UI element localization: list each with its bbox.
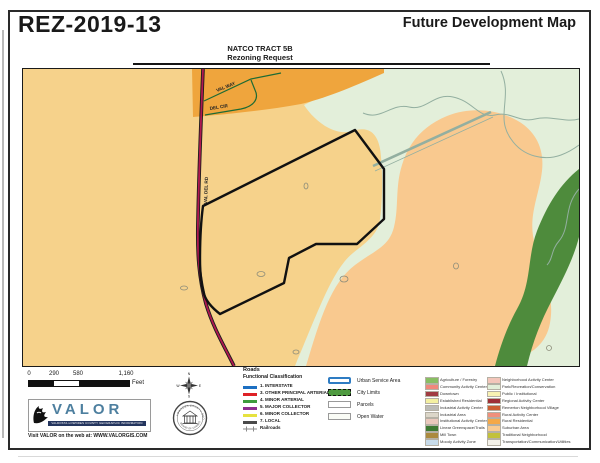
land-use-swatch [425, 398, 439, 405]
land-use-swatch [487, 412, 501, 419]
road-class-label: 5. MAJOR COLLECTOR [260, 404, 310, 409]
land-use-label: Neighborhood Activity Center [502, 377, 554, 382]
land-use-swatch [425, 418, 439, 425]
land-use-label: Community Activity Center [440, 384, 487, 389]
railroad-symbol [243, 426, 257, 432]
compass-rose-icon: N E S W [176, 371, 202, 398]
road-class-line [243, 393, 257, 396]
road-class-label: 6. MINOR COLLECTOR [260, 411, 309, 416]
boundary-label: Parcels [357, 402, 374, 408]
land-use-label: Regional Activity Center [502, 398, 544, 403]
land-use-swatch [425, 405, 439, 412]
railroads-label: Railroads [260, 425, 281, 430]
land-use-label: Industrial Activity Center [440, 405, 483, 410]
valor-website-line: Visit VALOR on the web at: WWW.VALORGIS.… [28, 433, 168, 439]
scanned-map-page: REZ-2019-13 Future Development Map NATCO… [0, 0, 600, 463]
svg-text:N: N [188, 372, 191, 376]
scale-tick: 580 [68, 371, 88, 377]
scan-edge [2, 30, 4, 438]
land-use-swatch [425, 384, 439, 391]
land-use-swatch [487, 439, 501, 446]
road-class-label: 3. OTHER PRINCIPAL ARTERIAL [260, 390, 330, 395]
land-use-label: Public / Institutional [502, 391, 536, 396]
val-del-rd-label: VAL DEL RD [203, 176, 209, 204]
land-use-swatch [487, 398, 501, 405]
county-seal-icon: LOWNDES COUNTY GEORGIA BOARD OF COMMISSI… [170, 398, 210, 438]
land-use-label: Institutional Activity Center [440, 418, 487, 423]
valor-logo-icon [32, 404, 49, 426]
land-use-label: Transportation/Communication/Utilities [502, 439, 571, 444]
scale-tick: 290 [44, 371, 64, 377]
land-use-label: Industrial Area [440, 412, 466, 417]
road-class-line [243, 400, 257, 403]
road-class-line [243, 414, 257, 417]
map-canvas: VAL WAY DEL CIR VAL DEL RD [22, 68, 580, 367]
case-number: REZ-2019-13 [18, 11, 162, 38]
scan-edge [18, 456, 578, 457]
road-class-label: 1. INTERSTATE [260, 383, 293, 388]
land-use-label: Suburban Area [502, 425, 529, 430]
tract-name: NATCO TRACT 5B [180, 44, 340, 53]
land-use-label: Mill Town [440, 432, 456, 437]
land-use-swatch [425, 377, 439, 384]
map-drawing: VAL WAY DEL CIR VAL DEL RD [23, 69, 579, 366]
title-underline [133, 63, 490, 65]
scale-unit: Feet [132, 380, 144, 386]
land-use-label: Linear Greenspace/Trails [440, 425, 485, 430]
scale-bar [28, 380, 130, 387]
land-use-swatch [425, 425, 439, 432]
boundary-label: Open Water [357, 414, 384, 420]
land-use-label: Established Residential [440, 398, 482, 403]
parcels-swatch [328, 401, 351, 408]
land-use-swatch [487, 384, 501, 391]
road-class-label: 4. MINOR ARTERIAL [260, 397, 304, 402]
scale-tick: 1,160 [112, 371, 140, 377]
road-class-line [243, 421, 257, 424]
city-limits-swatch [328, 389, 351, 396]
land-use-label: Downtown [440, 391, 459, 396]
boundary-label: Urban Service Area [357, 378, 400, 384]
land-use-label: Traditional Neighborhood [502, 432, 547, 437]
land-use-label: Rural Residential [502, 418, 532, 423]
land-use-swatch [487, 432, 501, 439]
land-use-swatch [487, 418, 501, 425]
map-title: Future Development Map [403, 15, 576, 31]
land-use-swatch [425, 439, 439, 446]
svg-text:W: W [176, 384, 180, 388]
roads-legend-title: Roads [243, 367, 260, 373]
land-use-label: Park/Recreation/Conservation [502, 384, 555, 389]
boundary-label: City Limits [357, 390, 380, 396]
land-use-label: Rural Activity Center [502, 412, 538, 417]
land-use-swatch [425, 432, 439, 439]
open-water-swatch [328, 413, 351, 420]
urban-service-area-swatch [328, 377, 351, 384]
land-use-label: Agriculture / Forestry [440, 377, 477, 382]
road-class-label: 7. LOCAL [260, 418, 281, 423]
land-use-swatch [487, 377, 501, 384]
land-use-swatch [425, 412, 439, 419]
land-use-label: Remerton Neighborhood Village [502, 405, 559, 410]
land-use-swatch [487, 425, 501, 432]
svg-text:E: E [199, 384, 202, 388]
road-class-line [243, 386, 257, 389]
request-type: Rezoning Request [180, 53, 340, 62]
scale-tick: 0 [24, 371, 34, 377]
land-use-swatch [487, 405, 501, 412]
road-class-line [243, 407, 257, 410]
valor-tagline: VALDOSTA-LOWNDES COUNTY GEOGRAPHIC INFOR… [48, 421, 146, 426]
roads-legend-subtitle: Functional Classification [243, 374, 302, 380]
land-use-swatch [425, 391, 439, 398]
land-use-swatch [487, 391, 501, 398]
land-use-label: Moody Activity Zone [440, 439, 476, 444]
valor-wordmark: VALOR [52, 401, 123, 418]
